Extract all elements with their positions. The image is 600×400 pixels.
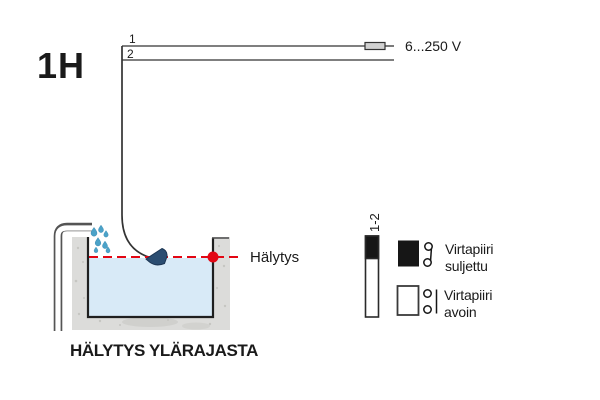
tank-water [89,258,212,317]
legend-closed-line2: suljettu [445,258,488,274]
contact-state-legend: 1-2 Virtapiiri suljettu Virtapiiri avoin [366,213,494,320]
wire-2-label: 2 [127,47,134,61]
wire-1-label: 1 [129,32,136,46]
closed-swatch [398,241,419,267]
legend-open-line1: Virtapiiri [444,287,492,303]
legend-open-line2: avoin [444,304,476,320]
water-drop-icon [95,238,101,246]
legend-entry-open: Virtapiiri avoin [398,286,493,320]
water-drop-icon [94,247,98,253]
alarm-label: Hälytys [250,249,299,266]
open-swatch [398,286,419,315]
closed-contact-icon [424,243,432,266]
open-contact-icon [424,290,437,314]
voltage-label: 6...250 V [405,38,462,54]
water-drop-icon [102,241,107,248]
figure-caption: HÄLYTYS YLÄRAJASTA [70,341,258,360]
legend-entry-closed: Virtapiiri suljettu [398,241,493,275]
legend-closed-line1: Virtapiiri [445,241,493,257]
circuit-wiring [122,43,394,258]
state-bar-closed-segment [366,236,379,259]
legend-column-label: 1-2 [367,213,382,232]
water-drops [91,225,110,253]
figure-id-label: 1H [37,45,85,86]
sensor-cable [122,46,150,258]
fuse-icon [365,43,385,50]
water-drop-icon [104,231,109,238]
level-switch-diagram: 1H 1 2 6...250 V [0,0,600,400]
diagram-canvas: 1H 1 2 6...250 V [0,0,600,400]
water-drop-icon [98,225,103,232]
alarm-point-dot [208,252,219,263]
